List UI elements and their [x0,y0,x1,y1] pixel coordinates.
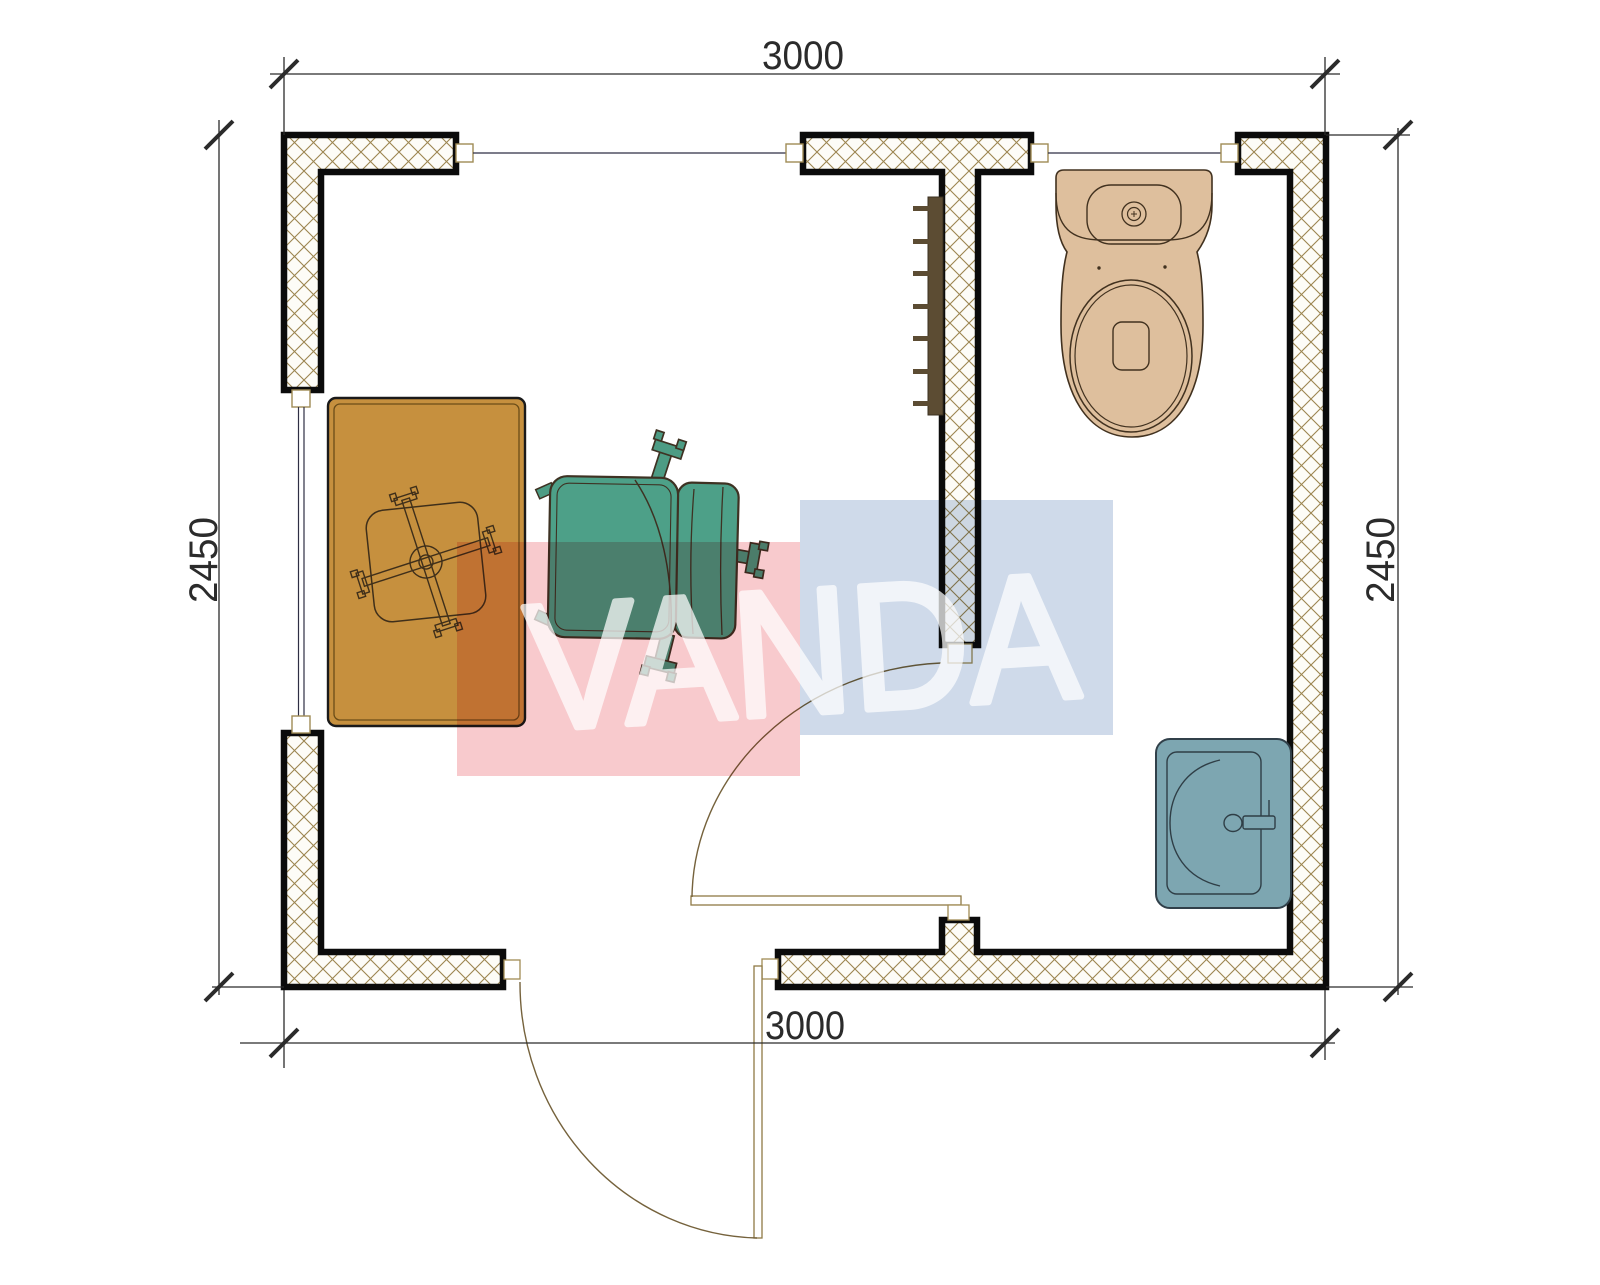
svg-text:3000: 3000 [762,34,844,78]
svg-text:VANDA: VANDA [521,535,1084,767]
svg-text:3000: 3000 [765,1004,845,1048]
svg-text:2450: 2450 [182,517,226,603]
svg-text:2450: 2450 [1359,517,1403,603]
